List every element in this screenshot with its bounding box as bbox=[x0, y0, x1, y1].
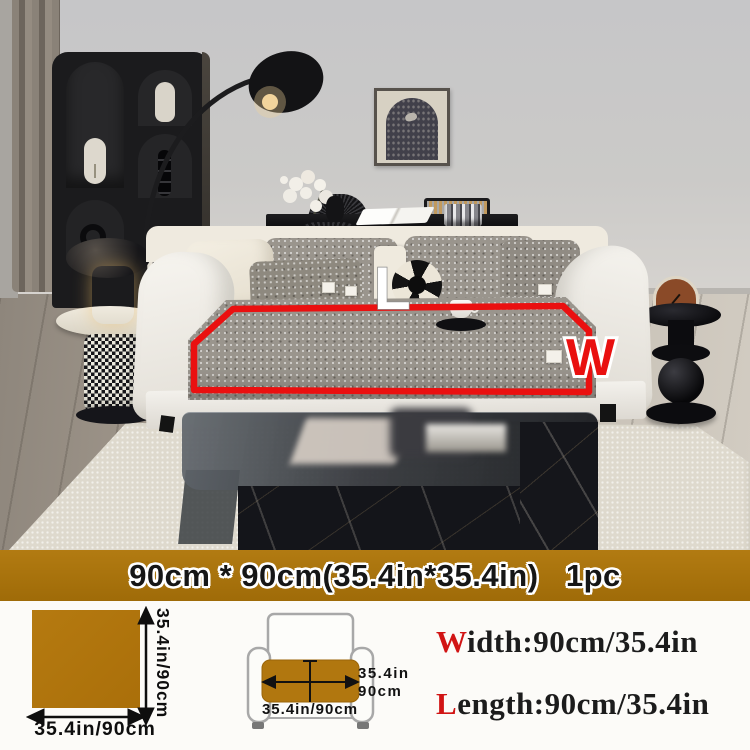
seat-width-label-cm: 90cm bbox=[358, 683, 402, 700]
living-room-photo: L W bbox=[0, 0, 750, 550]
width-spec-line: Width:90cm/35.4in bbox=[436, 624, 698, 660]
size-banner: 90cm * 90cm(35.4in*35.4in) 1pc bbox=[0, 550, 750, 601]
height-dimension-label: 35.4in/90cm bbox=[152, 608, 173, 724]
length-marker-label: L bbox=[374, 255, 411, 322]
width-spec-prefix: W bbox=[436, 624, 467, 659]
size-annotation-overlay: L W bbox=[0, 0, 750, 550]
length-spec-prefix: L bbox=[436, 686, 457, 721]
length-spec-line: Length:90cm/35.4in bbox=[436, 686, 709, 722]
seat-front-label: 35.4in/90cm bbox=[262, 701, 358, 718]
chair-foot-left bbox=[252, 722, 264, 729]
product-size-image: L W 90cm * 90cm(35.4in*35.4in) 1pc 35.4i… bbox=[0, 0, 750, 750]
width-marker-label: W bbox=[566, 329, 616, 387]
fabric-swatch bbox=[32, 610, 140, 708]
chair-foot-right bbox=[357, 722, 369, 729]
width-spec-rest: idth:90cm/35.4in bbox=[467, 624, 698, 659]
seat-width-label-in: 35.4in bbox=[358, 665, 410, 682]
width-dimension-label: 35.4in/90cm bbox=[20, 718, 170, 741]
chair-diagram: 35.4in 90cm 35.4in/90cm bbox=[236, 598, 420, 750]
size-banner-text: 90cm * 90cm(35.4in*35.4in) 1pc bbox=[129, 558, 621, 594]
length-spec-rest: ength:90cm/35.4in bbox=[457, 686, 709, 721]
